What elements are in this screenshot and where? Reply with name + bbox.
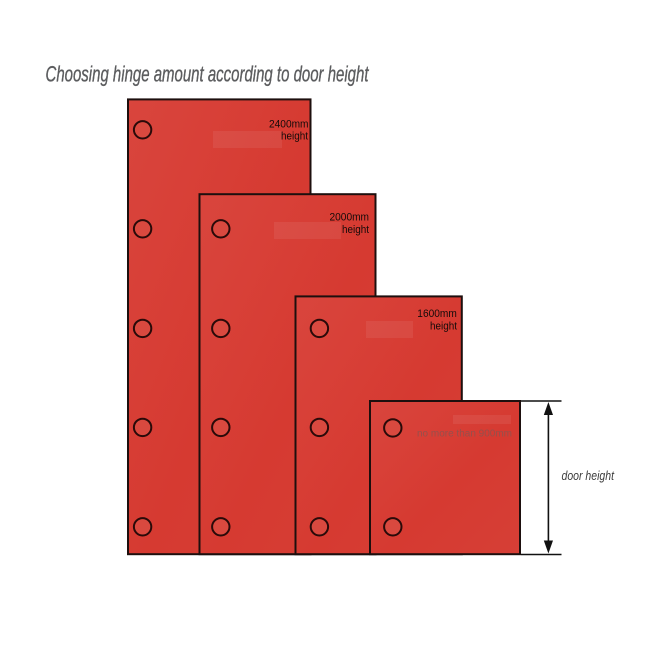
svg-text:height: height [281,131,309,143]
svg-text:Choosing hinge amount accordin: Choosing hinge amount according to door … [46,62,370,87]
svg-text:no more than 900mm: no more than 900mm [417,429,512,440]
svg-text:height: height [342,224,370,236]
svg-text:height: height [430,321,458,333]
svg-text:1600mm: 1600mm [417,308,457,320]
svg-text:2000mm: 2000mm [330,211,370,223]
svg-text:2400mm: 2400mm [269,118,309,130]
svg-text:door height: door height [562,468,616,483]
